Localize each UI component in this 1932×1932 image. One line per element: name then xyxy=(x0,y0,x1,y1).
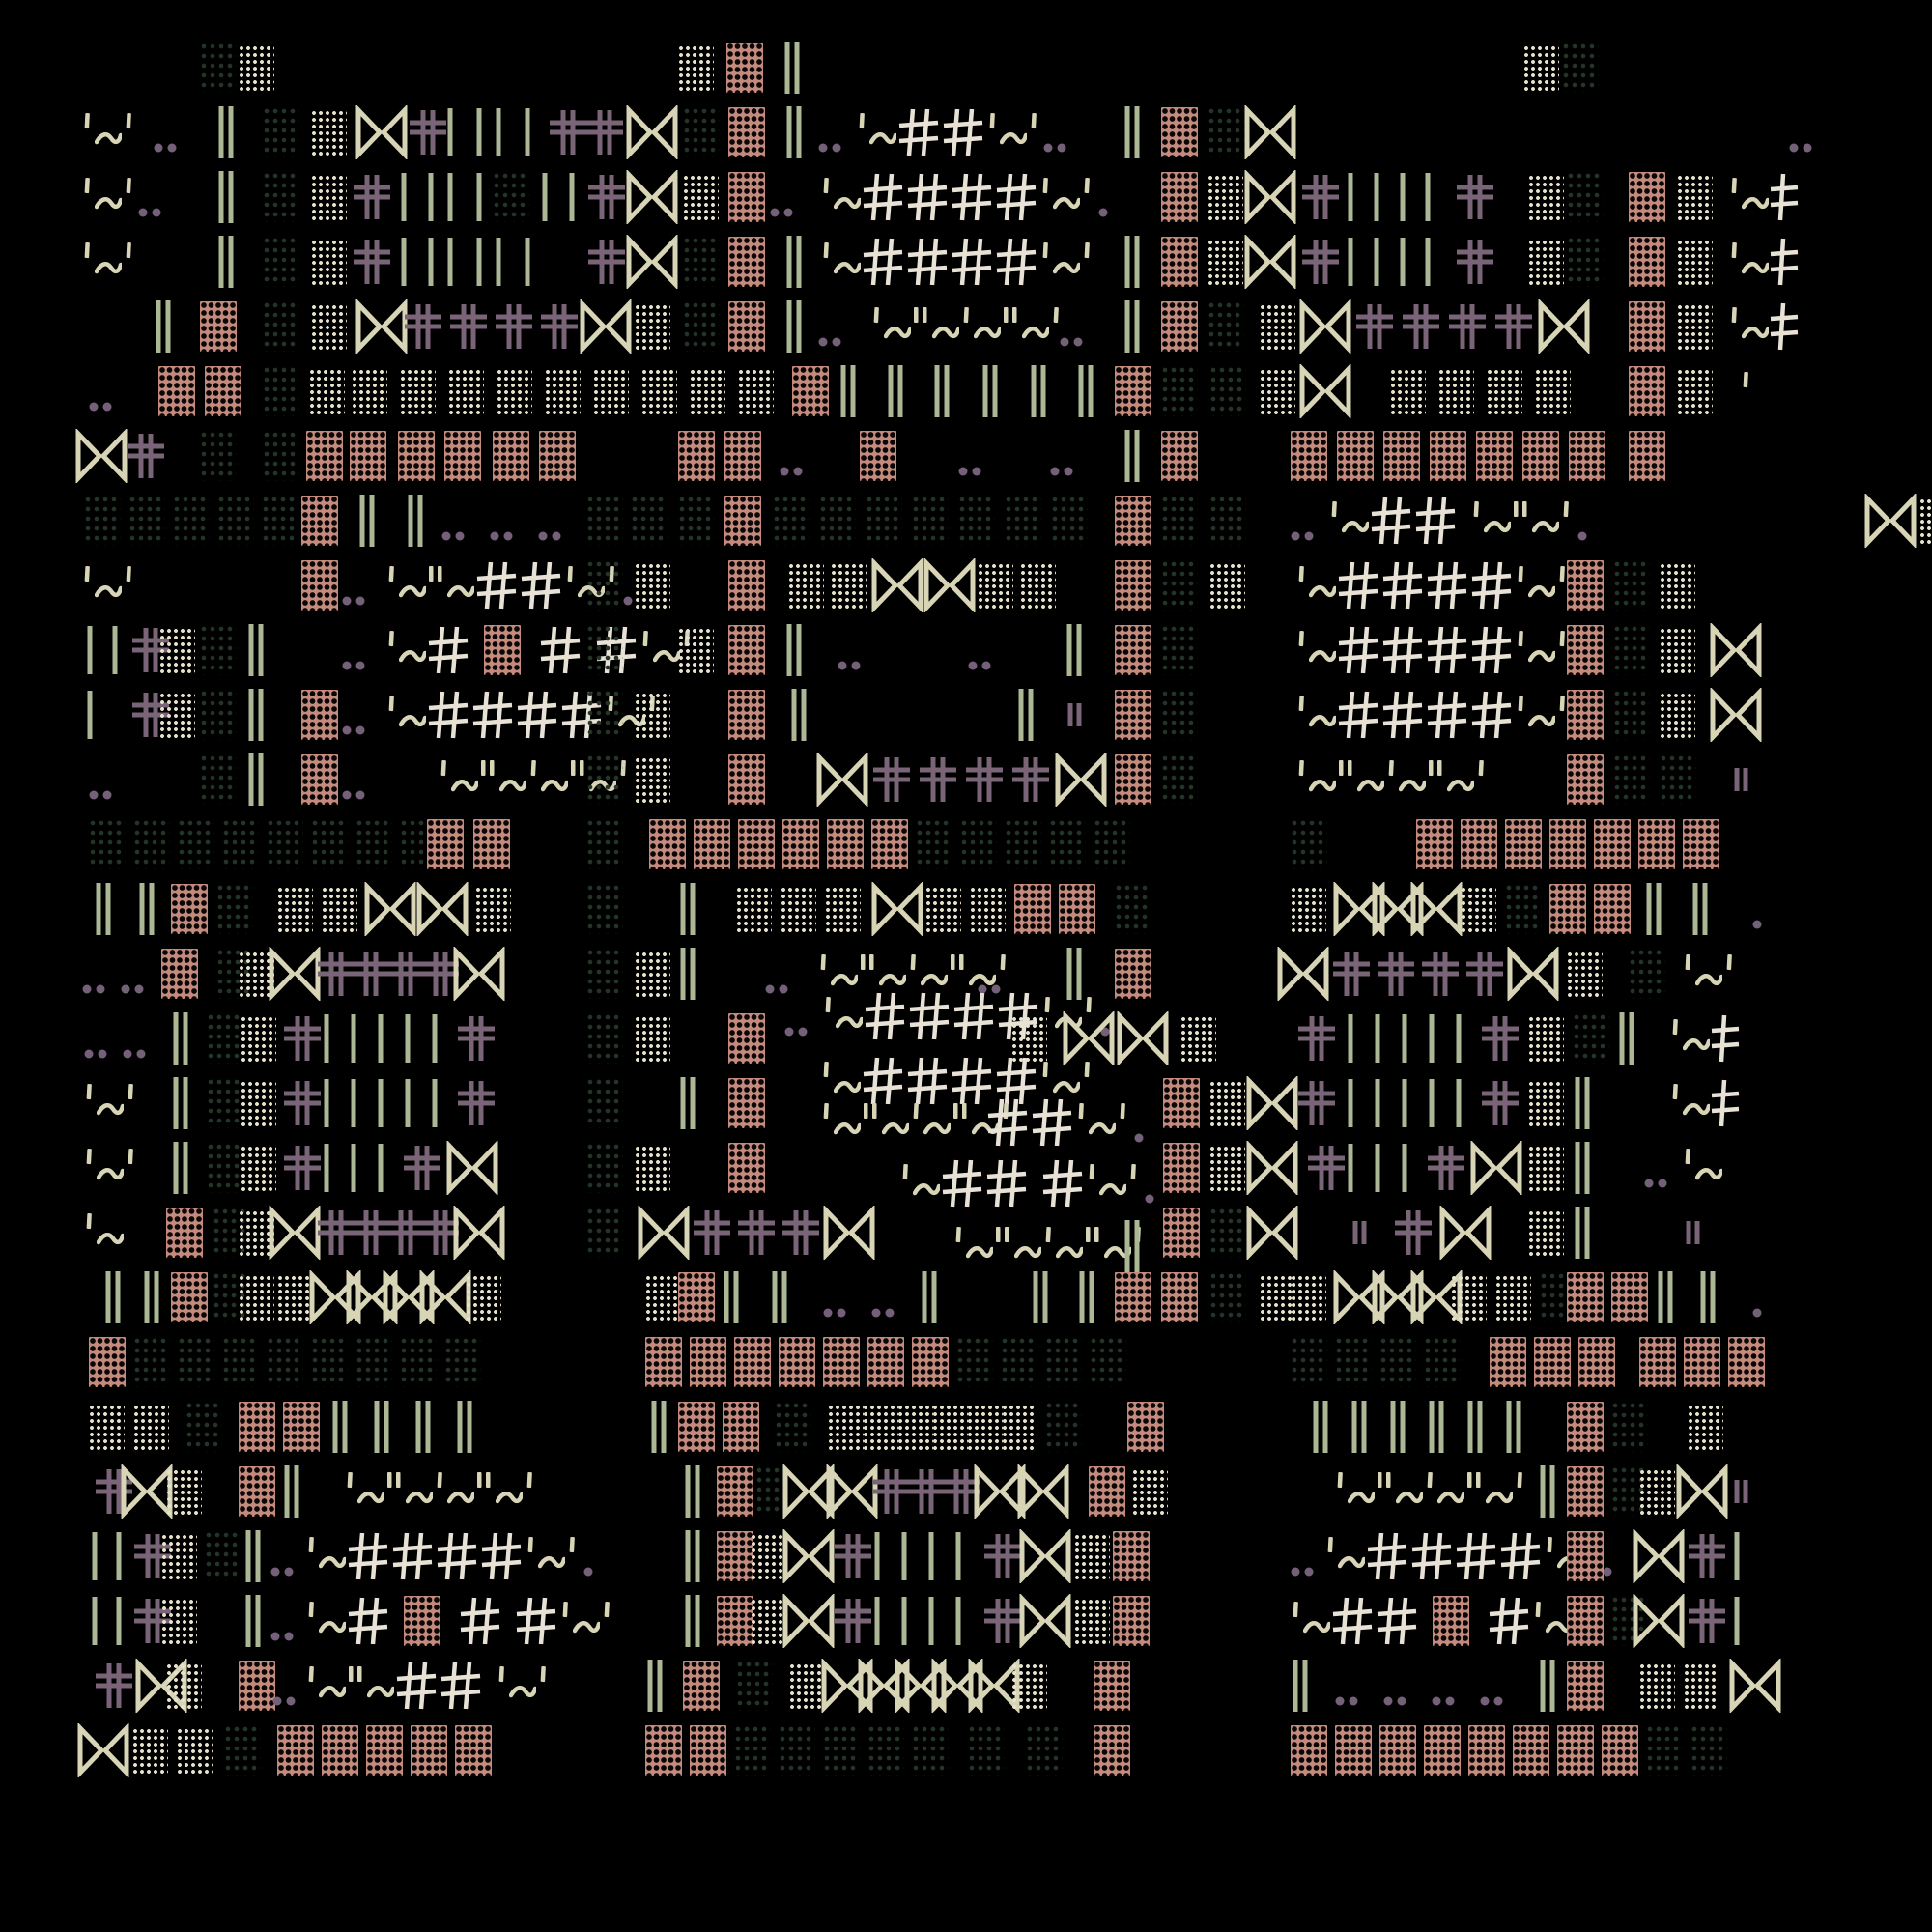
pink-waffle-block xyxy=(1567,1466,1604,1517)
tick-glyph xyxy=(1423,1464,1437,1519)
tick-glyph xyxy=(952,1219,966,1273)
double-bar-green xyxy=(676,947,699,1001)
dotted-square-cream xyxy=(751,1599,786,1644)
dotted-square-cream xyxy=(1639,1469,1675,1515)
dotted-square-cream xyxy=(545,369,581,414)
dotted-square-cream xyxy=(166,1663,202,1709)
dotted-square-cream xyxy=(89,1405,125,1450)
dotted-square-dark xyxy=(185,1402,222,1452)
dotted-square-dark xyxy=(128,496,165,546)
double-tick-glyph xyxy=(1001,299,1022,354)
dotted-square-dark xyxy=(586,1078,623,1128)
pink-waffle-block xyxy=(1611,1272,1648,1322)
dotted-square-dark xyxy=(1115,884,1151,934)
dotted-square-dark xyxy=(267,819,303,869)
single-bar-green xyxy=(537,170,553,224)
pink-waffle-block xyxy=(728,107,765,157)
tilde-glyph xyxy=(932,299,959,354)
dotted-square-cream xyxy=(1677,369,1713,414)
double-bar-green xyxy=(676,882,699,936)
tick-glyph xyxy=(82,1076,97,1130)
bowtie-icon xyxy=(1729,1659,1781,1713)
dotted-square-dark xyxy=(267,1337,303,1387)
single-bar-green xyxy=(951,1529,966,1583)
dotted-square-cream xyxy=(497,369,532,414)
dotted-square-dark xyxy=(1094,819,1130,869)
dotted-square-dark xyxy=(1209,366,1246,416)
pink-waffle-block xyxy=(728,754,765,805)
double-bar-purple xyxy=(1063,688,1086,742)
tilde-glyph xyxy=(1447,753,1474,807)
dotted-square-dark xyxy=(586,560,623,611)
tilde-glyph xyxy=(573,1594,600,1648)
single-bar-green xyxy=(423,170,439,224)
hash-glyph xyxy=(1040,1156,1085,1210)
hash-glyph xyxy=(426,688,470,742)
double-cross-glyph xyxy=(584,170,629,224)
tick-glyph xyxy=(1038,235,1053,289)
dotted-square-cream xyxy=(781,887,816,932)
pink-waffle-block xyxy=(1115,690,1151,740)
tilde-glyph xyxy=(882,1095,909,1150)
tick-glyph xyxy=(1559,494,1574,548)
dotted-square-cream xyxy=(1660,693,1695,738)
double-cross-glyph xyxy=(1009,753,1053,807)
hash-glyph xyxy=(907,989,952,1043)
tick-glyph xyxy=(304,1594,319,1648)
double-bar-green xyxy=(1463,1400,1487,1454)
dotted-square-dark xyxy=(1161,560,1198,611)
dotted-square-cream xyxy=(1660,628,1695,673)
dot-pair-purple xyxy=(340,753,367,807)
double-bar-green xyxy=(782,105,806,159)
tilde-glyph xyxy=(966,1219,993,1273)
dotted-square-cream xyxy=(645,1275,681,1321)
dotted-square-cream xyxy=(825,887,861,932)
pink-waffle-block xyxy=(1161,301,1198,352)
dotted-square-cream xyxy=(678,628,714,673)
dotted-square-cream xyxy=(1180,1016,1216,1062)
double-cross-glyph xyxy=(690,1206,734,1260)
double-cross-glyph xyxy=(124,429,168,483)
single-bar-green xyxy=(442,170,458,224)
dotted-square-dark xyxy=(263,172,299,222)
tilde-glyph xyxy=(1742,235,1769,289)
tilde-glyph xyxy=(1342,494,1369,548)
pink-waffle-block xyxy=(1161,431,1198,481)
pink-waffle-block xyxy=(444,431,481,481)
double-bar-green xyxy=(92,882,115,936)
dot-single-purple xyxy=(1130,1095,1148,1150)
pink-waffle-block xyxy=(1115,560,1151,611)
pink-waffle-block xyxy=(301,690,338,740)
pink-waffle-block xyxy=(860,431,896,481)
tilde-glyph xyxy=(97,1141,124,1195)
double-bar-green xyxy=(1121,429,1144,483)
pink-waffle-block xyxy=(1163,1078,1200,1128)
dotted-square-cream xyxy=(322,887,357,932)
hash-glyph xyxy=(1336,623,1380,677)
tick-glyph xyxy=(909,1095,923,1150)
hash-glyph xyxy=(538,623,582,677)
double-bar-green xyxy=(1536,1659,1559,1713)
pink-waffle-block xyxy=(1728,1337,1765,1387)
pink-waffle-block xyxy=(1549,819,1586,869)
tick-glyph xyxy=(1294,753,1309,807)
dot-pair-purple xyxy=(1381,1659,1408,1713)
hash-glyph xyxy=(426,623,470,677)
dot-pair-purple xyxy=(82,1011,109,1065)
double-cross-glyph xyxy=(454,1011,498,1065)
pink-waffle-block xyxy=(306,431,343,481)
single-bar-green xyxy=(319,1076,334,1130)
dotted-square-cream xyxy=(1528,1146,1564,1191)
bowtie-icon xyxy=(1864,494,1917,548)
dotted-square-dark xyxy=(912,1725,949,1776)
hash-glyph xyxy=(1469,688,1514,742)
pink-waffle-block xyxy=(1433,1596,1469,1646)
tilde-glyph xyxy=(499,753,526,807)
dot-single-purple xyxy=(1574,494,1591,548)
dotted-square-dark xyxy=(631,496,668,546)
hash-glyph xyxy=(1425,623,1469,677)
hash-glyph xyxy=(1425,688,1469,742)
half-hash-glyph xyxy=(1710,1011,1741,1065)
tilde-glyph xyxy=(836,989,863,1043)
dotted-square-cream xyxy=(132,1728,168,1774)
dotted-square-dark xyxy=(1209,1207,1246,1258)
tick-glyph xyxy=(384,558,399,612)
double-tick-glyph xyxy=(861,1095,882,1150)
tilde-glyph xyxy=(541,753,568,807)
double-bar-green xyxy=(979,364,1002,418)
double-bar-green xyxy=(676,1076,699,1130)
dotted-square-cream xyxy=(1688,1405,1723,1450)
pink-waffle-block xyxy=(734,1337,771,1387)
tick-glyph xyxy=(1727,235,1742,289)
double-cross-glyph xyxy=(537,299,582,354)
pink-waffle-block xyxy=(738,819,775,869)
dotted-square-cream xyxy=(970,887,1006,932)
dotted-square-dark xyxy=(216,884,253,934)
hash-glyph xyxy=(1336,558,1380,612)
dotted-square-dark xyxy=(493,172,529,222)
dotted-square-cream xyxy=(683,175,719,220)
tilde-glyph xyxy=(509,1659,536,1713)
hash-glyph xyxy=(994,170,1038,224)
dotted-square-dark xyxy=(311,1337,348,1387)
tilde-glyph xyxy=(451,753,478,807)
dotted-square-dark xyxy=(1005,819,1041,869)
pink-waffle-block xyxy=(678,1272,715,1322)
double-bar-green xyxy=(681,1529,704,1583)
tick-glyph xyxy=(1668,1011,1683,1065)
tilde-glyph xyxy=(1528,623,1555,677)
dotted-square-dark xyxy=(823,1725,860,1776)
dotted-square-dark xyxy=(912,496,949,546)
dot-pair-purple xyxy=(136,170,163,224)
bowtie-icon xyxy=(416,882,469,936)
double-bar-green xyxy=(1014,688,1037,742)
pink-waffle-block xyxy=(350,431,386,481)
dotted-square-dark xyxy=(173,496,210,546)
pink-waffle-block xyxy=(1115,366,1151,416)
double-bar-green xyxy=(1571,1076,1594,1130)
tick-glyph xyxy=(1514,688,1528,742)
pink-waffle-block xyxy=(1115,1272,1151,1322)
pink-waffle-block xyxy=(200,301,237,352)
dotted-square-dark xyxy=(819,496,856,546)
tilde-glyph xyxy=(913,1156,940,1210)
dotted-square-cream xyxy=(1677,175,1713,220)
tilde-glyph xyxy=(1532,494,1559,548)
tilde-glyph xyxy=(357,1464,384,1519)
dotted-square-dark xyxy=(217,496,254,546)
double-bar-green xyxy=(370,1400,393,1454)
pink-waffle-block xyxy=(1335,1725,1372,1776)
dotted-square-dark xyxy=(1505,884,1542,934)
pink-waffle-block xyxy=(871,819,908,869)
pink-waffle-block xyxy=(539,431,576,481)
dot-single-purple xyxy=(1094,170,1112,224)
pink-waffle-block xyxy=(1594,884,1631,934)
dotted-square-cream xyxy=(831,563,867,609)
dotted-square-dark xyxy=(683,107,720,157)
pink-waffle-block xyxy=(1379,1725,1416,1776)
dotted-square-cream xyxy=(1528,175,1564,220)
double-cross-glyph xyxy=(1418,947,1463,1001)
tick-glyph xyxy=(304,1659,319,1713)
single-bar-green xyxy=(373,1011,388,1065)
tilde-glyph xyxy=(1309,623,1336,677)
tick-glyph xyxy=(1294,558,1309,612)
hash-glyph xyxy=(479,1529,524,1583)
dot-pair-purple xyxy=(1289,1529,1316,1583)
dotted-square-dark xyxy=(1161,690,1198,740)
dotted-square-cream xyxy=(309,369,345,414)
tilde-glyph xyxy=(1484,494,1511,548)
dotted-square-dark xyxy=(1291,819,1327,869)
dotted-square-dark xyxy=(1562,43,1599,93)
tilde-glyph xyxy=(1528,558,1555,612)
hash-glyph xyxy=(1469,558,1514,612)
dotted-square-cream xyxy=(400,369,436,414)
tick-glyph xyxy=(1668,1076,1683,1130)
dotted-square-cream xyxy=(1919,498,1932,544)
tilde-glyph xyxy=(1309,688,1336,742)
bowtie-icon xyxy=(626,235,678,289)
hash-glyph xyxy=(474,558,519,612)
pink-waffle-block xyxy=(239,1402,275,1452)
dotted-square-dark xyxy=(1646,1725,1683,1776)
double-bar-green xyxy=(152,299,175,354)
double-tick-glyph xyxy=(1511,494,1532,548)
pink-waffle-block xyxy=(1522,431,1559,481)
dotted-square-cream xyxy=(738,369,774,414)
dotted-square-cream xyxy=(448,369,484,414)
double-bar-green xyxy=(453,1400,476,1454)
bowtie-icon xyxy=(453,1206,505,1260)
dotted-square-dark xyxy=(586,496,623,546)
single-bar-green xyxy=(491,105,506,159)
pink-waffle-block xyxy=(1629,237,1665,287)
dotted-square-cream xyxy=(166,1469,202,1515)
single-bar-green xyxy=(1395,170,1410,224)
tilde-glyph xyxy=(95,558,122,612)
dotted-square-cream xyxy=(678,45,714,91)
single-bar-green xyxy=(442,105,458,159)
dotted-square-dark xyxy=(263,237,299,287)
pink-waffle-block xyxy=(1089,1466,1125,1517)
pink-waffle-block xyxy=(1513,1725,1549,1776)
tick-glyph xyxy=(124,1076,138,1130)
pink-waffle-block xyxy=(1113,1596,1150,1646)
double-bar-green xyxy=(1121,105,1144,159)
tilde-glyph xyxy=(496,1464,523,1519)
tick-glyph xyxy=(1085,1156,1099,1210)
pink-waffle-block xyxy=(717,1531,753,1581)
dotted-square-dark xyxy=(355,1337,392,1387)
dot-pair-purple xyxy=(1289,494,1316,548)
single-bar-green xyxy=(82,688,98,742)
dotted-square-dark xyxy=(867,1725,904,1776)
tick-glyph xyxy=(437,753,451,807)
tick-glyph xyxy=(821,989,836,1043)
double-cross-glyph xyxy=(446,299,491,354)
hash-glyph xyxy=(394,1659,439,1713)
dotted-square-dark xyxy=(968,1725,1005,1776)
single-bar-green xyxy=(442,235,458,289)
dotted-square-cream xyxy=(239,1275,274,1321)
double-cross-glyph xyxy=(401,299,445,354)
pink-waffle-block xyxy=(728,172,765,222)
bowtie-icon xyxy=(453,947,505,1001)
tilde-glyph xyxy=(1695,1141,1722,1195)
double-bar-green xyxy=(787,688,810,742)
double-tick-glyph xyxy=(384,1464,406,1519)
pink-waffle-block xyxy=(1291,1725,1327,1776)
dotted-square-dark xyxy=(263,107,299,157)
pink-waffle-block xyxy=(728,1013,765,1064)
double-cross-glyph xyxy=(1453,170,1497,224)
single-bar-green xyxy=(869,1594,885,1648)
dotted-square-cream xyxy=(159,693,195,738)
double-bar-green xyxy=(1502,1400,1525,1454)
pink-waffle-block xyxy=(1127,1402,1164,1452)
pink-waffle-block xyxy=(1115,496,1151,546)
single-bar-green xyxy=(400,1076,415,1130)
tick-glyph xyxy=(819,170,834,224)
bowtie-icon xyxy=(1017,1464,1069,1519)
pink-waffle-block xyxy=(1424,1725,1461,1776)
bowtie-icon xyxy=(1246,1076,1298,1130)
single-bar-green xyxy=(346,1011,361,1065)
tick-glyph xyxy=(1080,235,1094,289)
pink-waffle-block xyxy=(322,1725,358,1776)
tick-glyph xyxy=(1514,623,1528,677)
dotted-square-dark xyxy=(1001,1337,1037,1387)
pink-waffle-block xyxy=(171,884,208,934)
dotted-square-dark xyxy=(355,819,392,869)
dotted-square-dark xyxy=(400,1337,437,1387)
pink-waffle-block xyxy=(1567,625,1604,675)
single-bar-green xyxy=(923,1529,939,1583)
dot-pair-purple xyxy=(270,1659,298,1713)
dotted-square-cream xyxy=(311,240,347,285)
single-bar-green xyxy=(1420,235,1435,289)
tick-glyph xyxy=(1074,1095,1089,1150)
dotted-square-cream xyxy=(641,369,677,414)
pink-waffle-block xyxy=(1557,1725,1594,1776)
dotted-square-dark xyxy=(586,884,623,934)
double-bar-green xyxy=(140,1270,163,1324)
tick-glyph xyxy=(524,1529,538,1583)
tick-glyph xyxy=(1513,1464,1527,1519)
dotted-square-dark xyxy=(205,1531,241,1581)
dotted-square-cream xyxy=(1002,1405,1037,1450)
bowtie-icon xyxy=(1246,1141,1298,1195)
double-bar-green xyxy=(1642,882,1665,936)
pink-waffle-block xyxy=(1383,431,1420,481)
dotted-square-dark xyxy=(200,43,237,93)
dotted-square-cream xyxy=(1260,369,1295,414)
double-bar-green xyxy=(1425,1400,1448,1454)
tilde-glyph xyxy=(538,1529,565,1583)
dot-pair-purple xyxy=(340,623,367,677)
pink-waffle-block xyxy=(728,1143,765,1193)
dotted-square-dark xyxy=(1026,1725,1063,1776)
single-bar-green xyxy=(346,1076,361,1130)
tick-glyph xyxy=(122,235,136,289)
dotted-square-dark xyxy=(1090,1337,1126,1387)
double-bar-green xyxy=(328,1400,352,1454)
dot-pair-purple xyxy=(340,558,367,612)
dotted-square-dark xyxy=(133,819,170,869)
dotted-square-dark xyxy=(207,1078,243,1128)
dotted-square-cream xyxy=(161,1534,197,1579)
double-cross-glyph xyxy=(1352,299,1397,354)
double-bar-green xyxy=(643,1659,667,1713)
single-bar-green xyxy=(1370,1076,1385,1130)
bowtie-icon xyxy=(269,1206,321,1260)
hash-glyph xyxy=(1487,1594,1531,1648)
single-bar-green xyxy=(87,1529,102,1583)
hash-glyph xyxy=(985,1095,1030,1150)
tilde-glyph xyxy=(97,1076,124,1130)
hash-glyph xyxy=(346,1529,390,1583)
bowtie-icon xyxy=(1299,299,1351,354)
dot-pair-purple xyxy=(269,1594,296,1648)
dotted-square-dark xyxy=(1573,1013,1609,1064)
tick-glyph xyxy=(1727,170,1742,224)
dotted-square-dark xyxy=(133,1337,170,1387)
dotted-square-dark xyxy=(1567,237,1604,287)
pink-waffle-block xyxy=(1639,1337,1676,1387)
bowtie-icon xyxy=(269,947,321,1001)
tick-glyph xyxy=(122,558,136,612)
dotted-square-dark xyxy=(866,496,902,546)
pink-waffle-block xyxy=(728,625,765,675)
hash-glyph xyxy=(1498,1529,1543,1583)
hash-glyph xyxy=(1380,688,1425,742)
pink-waffle-block xyxy=(678,1402,715,1452)
double-bar-green xyxy=(169,1011,192,1065)
tilde-glyph xyxy=(399,623,426,677)
double-cross-glyph xyxy=(1399,299,1443,354)
tick-glyph xyxy=(1327,494,1342,548)
dotted-square-dark xyxy=(683,237,720,287)
pink-waffle-block xyxy=(823,1337,860,1387)
